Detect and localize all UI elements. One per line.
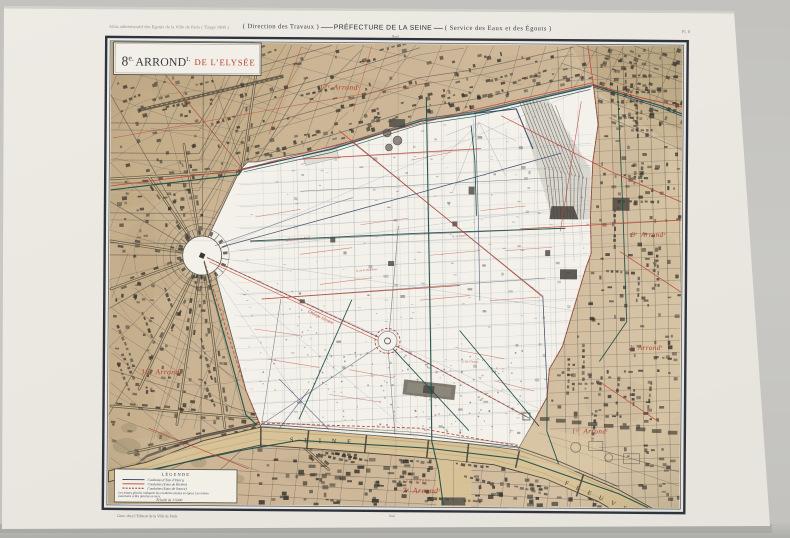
svg-text:Échelle de 1/5000: Échelle de 1/5000 — [155, 497, 182, 502]
svg-text:Sud: Sud — [389, 514, 395, 518]
svg-text:Grav. chez l’Editeur de la Vil: Grav. chez l’Editeur de la Ville de Pari… — [117, 514, 178, 518]
svg-text:LÉGENDE: LÉGENDE — [162, 472, 191, 477]
svg-text:Atlas administratif des Egouts: Atlas administratif des Egouts de la Vil… — [109, 24, 229, 30]
svg-text:DE L’ELYSÉE: DE L’ELYSÉE — [195, 57, 256, 67]
svg-text:Pl. 8: Pl. 8 — [682, 29, 691, 34]
svg-text:( Service des Eaux et des Égou: ( Service des Eaux et des Égouts ) — [445, 24, 552, 33]
svg-text:ponctuées celles placées en te: ponctuées celles placées en terre. — [117, 494, 161, 498]
svg-text:( Direction des Travaux ): ( Direction des Travaux ) — [243, 23, 319, 31]
